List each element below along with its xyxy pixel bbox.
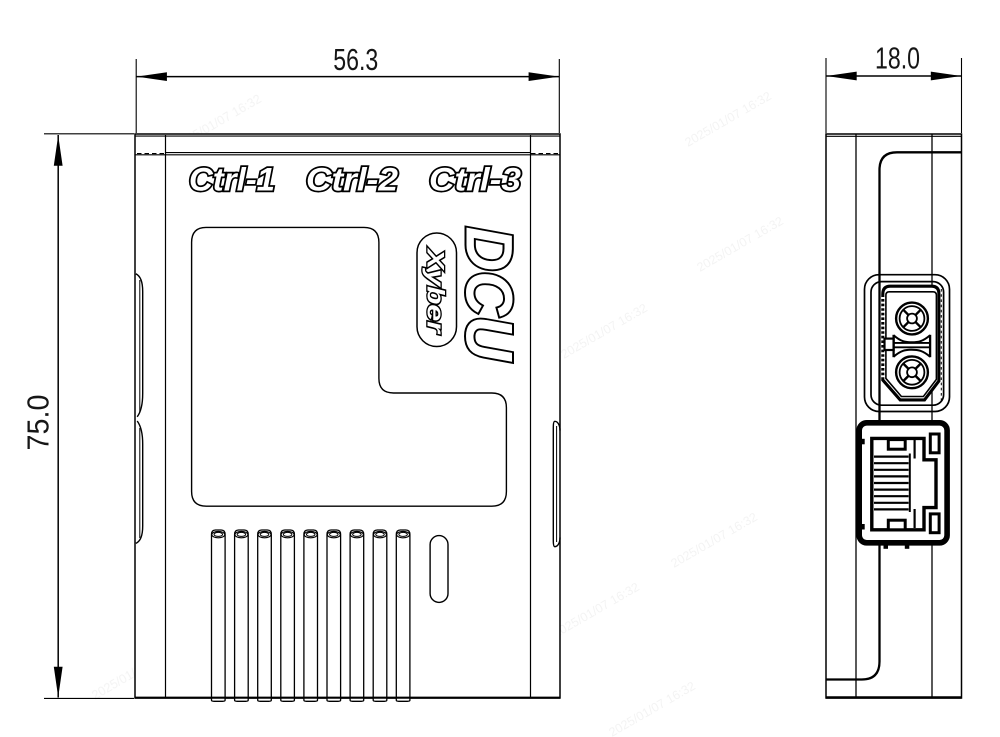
svg-text:Xyber: Xyber [422,246,449,335]
svg-text:Ctrl-2: Ctrl-2 [306,162,398,198]
svg-text:18.0: 18.0 [875,41,920,76]
svg-text:Ctrl-3: Ctrl-3 [429,162,521,198]
svg-text:56.3: 56.3 [333,42,378,77]
svg-text:DCU: DCU [453,227,527,363]
svg-text:Ctrl-1: Ctrl-1 [189,162,275,198]
svg-text:75.0: 75.0 [21,395,56,451]
